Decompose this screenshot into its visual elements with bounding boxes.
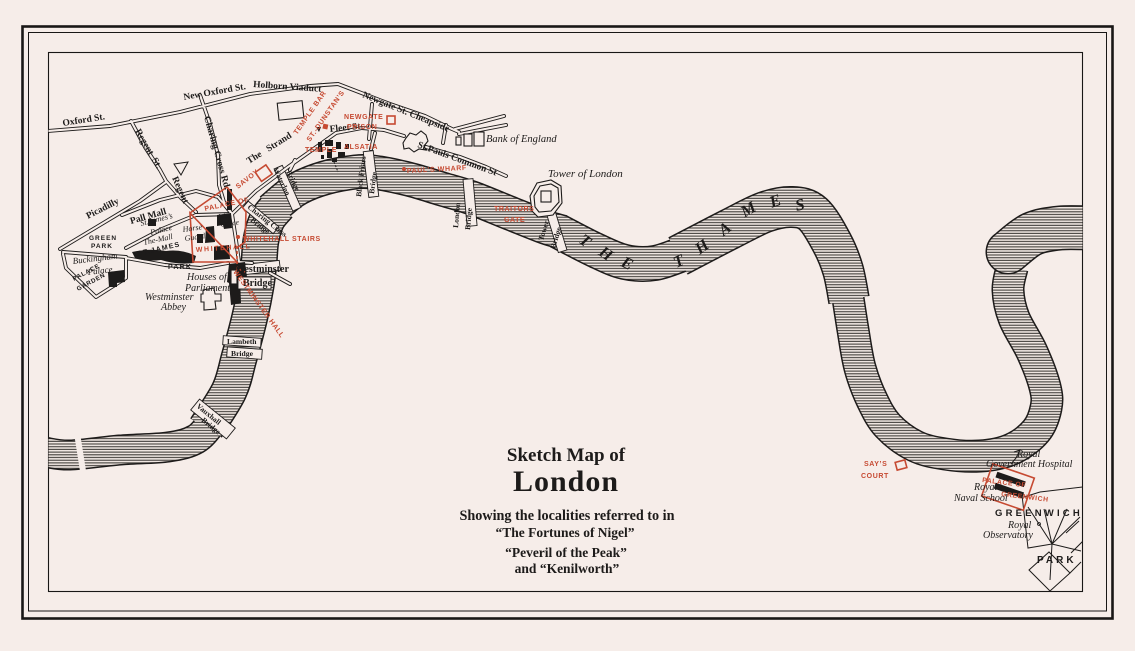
svg-text:GREEN: GREEN bbox=[89, 235, 117, 242]
svg-text:Government Hospital: Government Hospital bbox=[986, 459, 1073, 470]
svg-text:COURT: COURT bbox=[861, 473, 889, 480]
svg-text:WHITEHALL STAIRS: WHITEHALL STAIRS bbox=[243, 236, 321, 243]
svg-text:PARK: PARK bbox=[91, 243, 113, 250]
svg-text:PRISON: PRISON bbox=[347, 124, 377, 131]
svg-text:“Peveril of the Peak”: “Peveril of the Peak” bbox=[505, 545, 627, 560]
svg-text:TEMPLE: TEMPLE bbox=[305, 147, 337, 154]
svg-text:Tower of London: Tower of London bbox=[548, 168, 623, 180]
svg-text:London: London bbox=[513, 465, 619, 498]
svg-text:Sketch Map of: Sketch Map of bbox=[507, 445, 626, 466]
svg-text:ALSATIA: ALSATIA bbox=[344, 144, 378, 151]
svg-text:Observatory: Observatory bbox=[983, 530, 1034, 541]
svg-text:Naval School: Naval School bbox=[953, 493, 1008, 504]
svg-text:GATE: GATE bbox=[504, 217, 525, 224]
svg-text:“The Fortunes of Nigel”: “The Fortunes of Nigel” bbox=[495, 525, 634, 540]
svg-text:NEWGATE: NEWGATE bbox=[344, 114, 383, 121]
svg-text:Westminster: Westminster bbox=[235, 264, 289, 275]
svg-text:Houses of: Houses of bbox=[186, 272, 228, 283]
svg-text:PARK: PARK bbox=[168, 264, 192, 271]
svg-text:TRAITORS: TRAITORS bbox=[494, 206, 534, 213]
svg-text:Bridge: Bridge bbox=[231, 349, 254, 358]
svg-text:and “Kenilworth”: and “Kenilworth” bbox=[515, 561, 620, 576]
svg-text:Lambeth: Lambeth bbox=[227, 337, 257, 346]
svg-text:SAY’S: SAY’S bbox=[864, 461, 887, 468]
svg-text:Royal: Royal bbox=[973, 482, 998, 493]
svg-text:Abbey: Abbey bbox=[160, 302, 187, 313]
svg-text:Showing the localities referre: Showing the localities referred to in bbox=[459, 508, 674, 524]
svg-text:GREENWICH: GREENWICH bbox=[995, 508, 1083, 519]
svg-text:PARK: PARK bbox=[1037, 555, 1077, 566]
svg-text:Bank of England: Bank of England bbox=[486, 134, 557, 145]
